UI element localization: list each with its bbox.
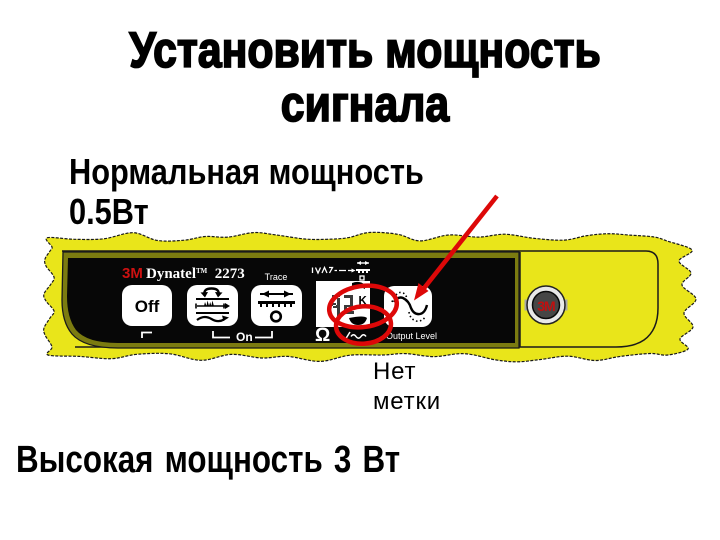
svg-text:Output Level: Output Level (386, 331, 437, 341)
svg-text:DynatelTM 2273: DynatelTM 2273 (146, 266, 245, 282)
svg-text:3M: 3M (537, 298, 555, 314)
svg-text:3M: 3M (122, 265, 143, 282)
svg-text:Off: Off (135, 297, 160, 316)
svg-text:Trace: Trace (265, 272, 288, 282)
svg-text:Ω: Ω (315, 325, 330, 346)
svg-text:On: On (236, 330, 253, 344)
